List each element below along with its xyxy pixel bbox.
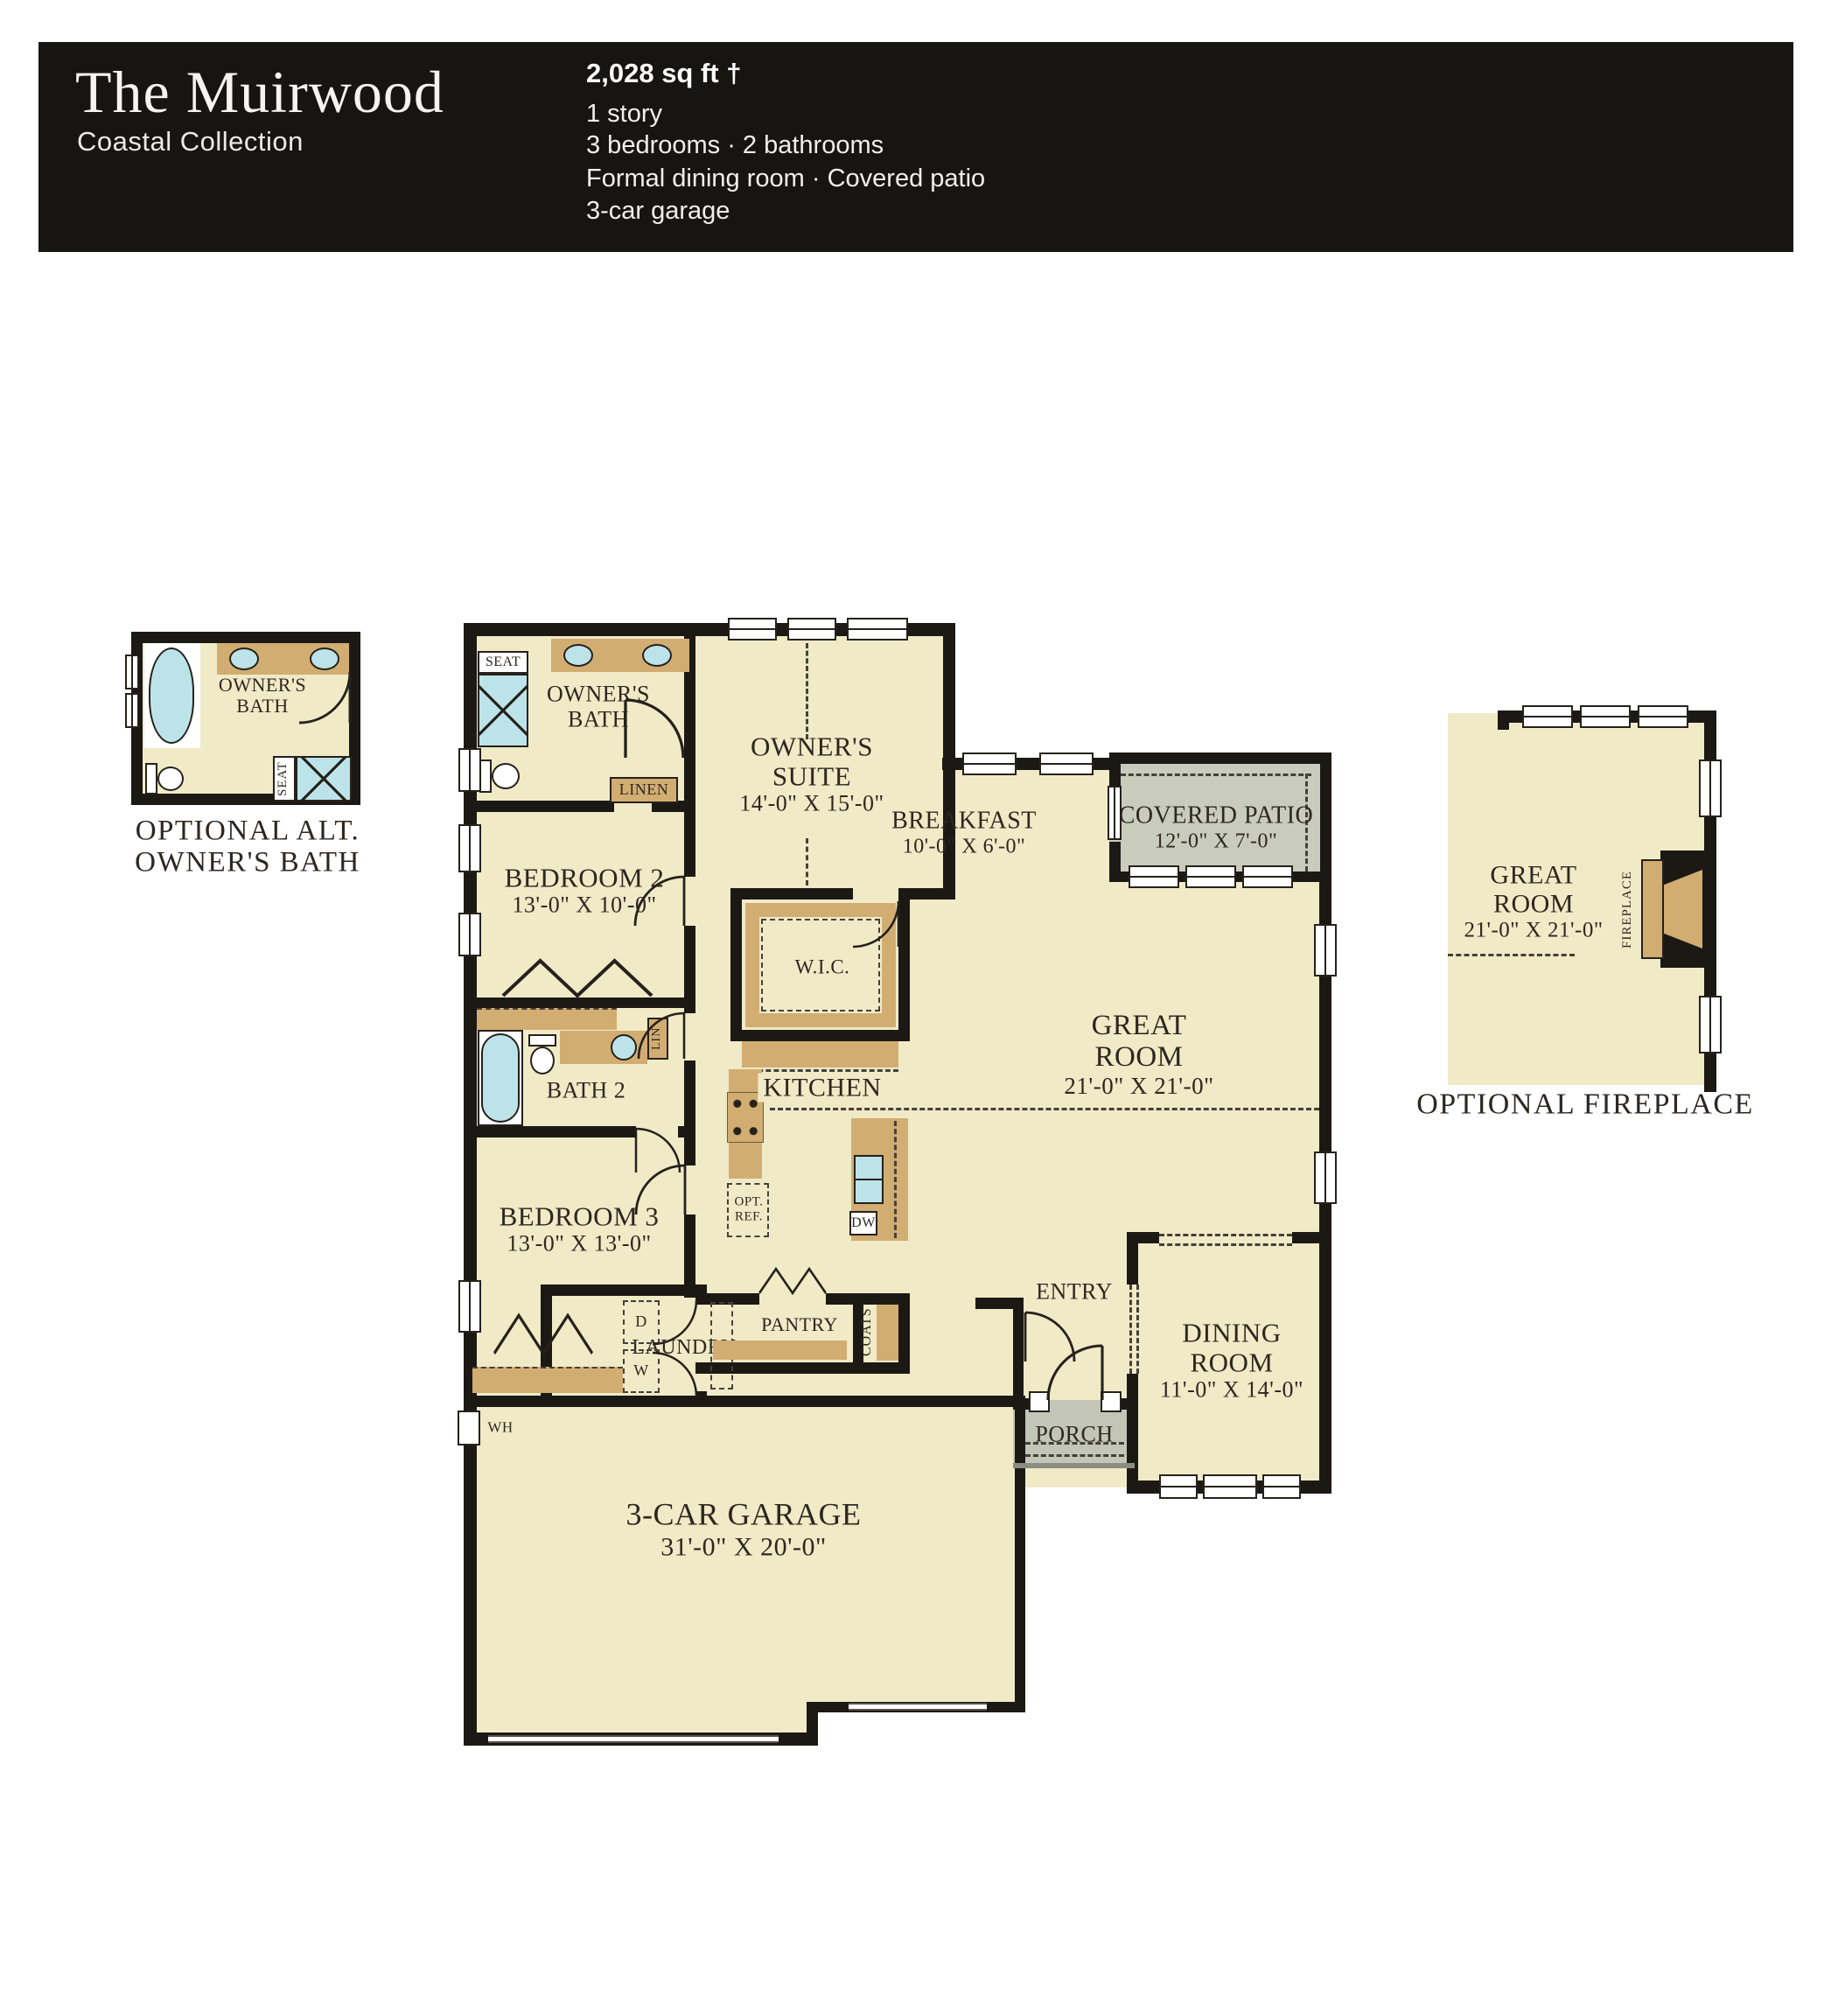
window-icon — [1699, 996, 1722, 1053]
inset-fireplace-caption: OPTIONAL FIREPLACE — [1416, 1088, 1754, 1120]
fireplace-hearth — [1641, 859, 1664, 959]
fireplace-label: FIREPLACE — [1620, 861, 1635, 957]
window-icon — [1638, 705, 1688, 728]
ceiling-break-dash — [1448, 954, 1575, 956]
brochure-page: The Muirwood Coastal Collection 2,028 sq… — [0, 0, 1831, 2016]
inset-greatroom-label: GREAT ROOM 21'-0" X 21'-0" — [1464, 860, 1603, 942]
window-icon — [1580, 705, 1631, 728]
inset-optional-fireplace: FIREPLACE GREAT ROOM 21'-0" X 21'-0" OPT… — [0, 0, 1831, 2016]
window-icon — [1522, 705, 1573, 728]
wall — [1498, 710, 1509, 730]
window-icon — [1699, 759, 1722, 817]
